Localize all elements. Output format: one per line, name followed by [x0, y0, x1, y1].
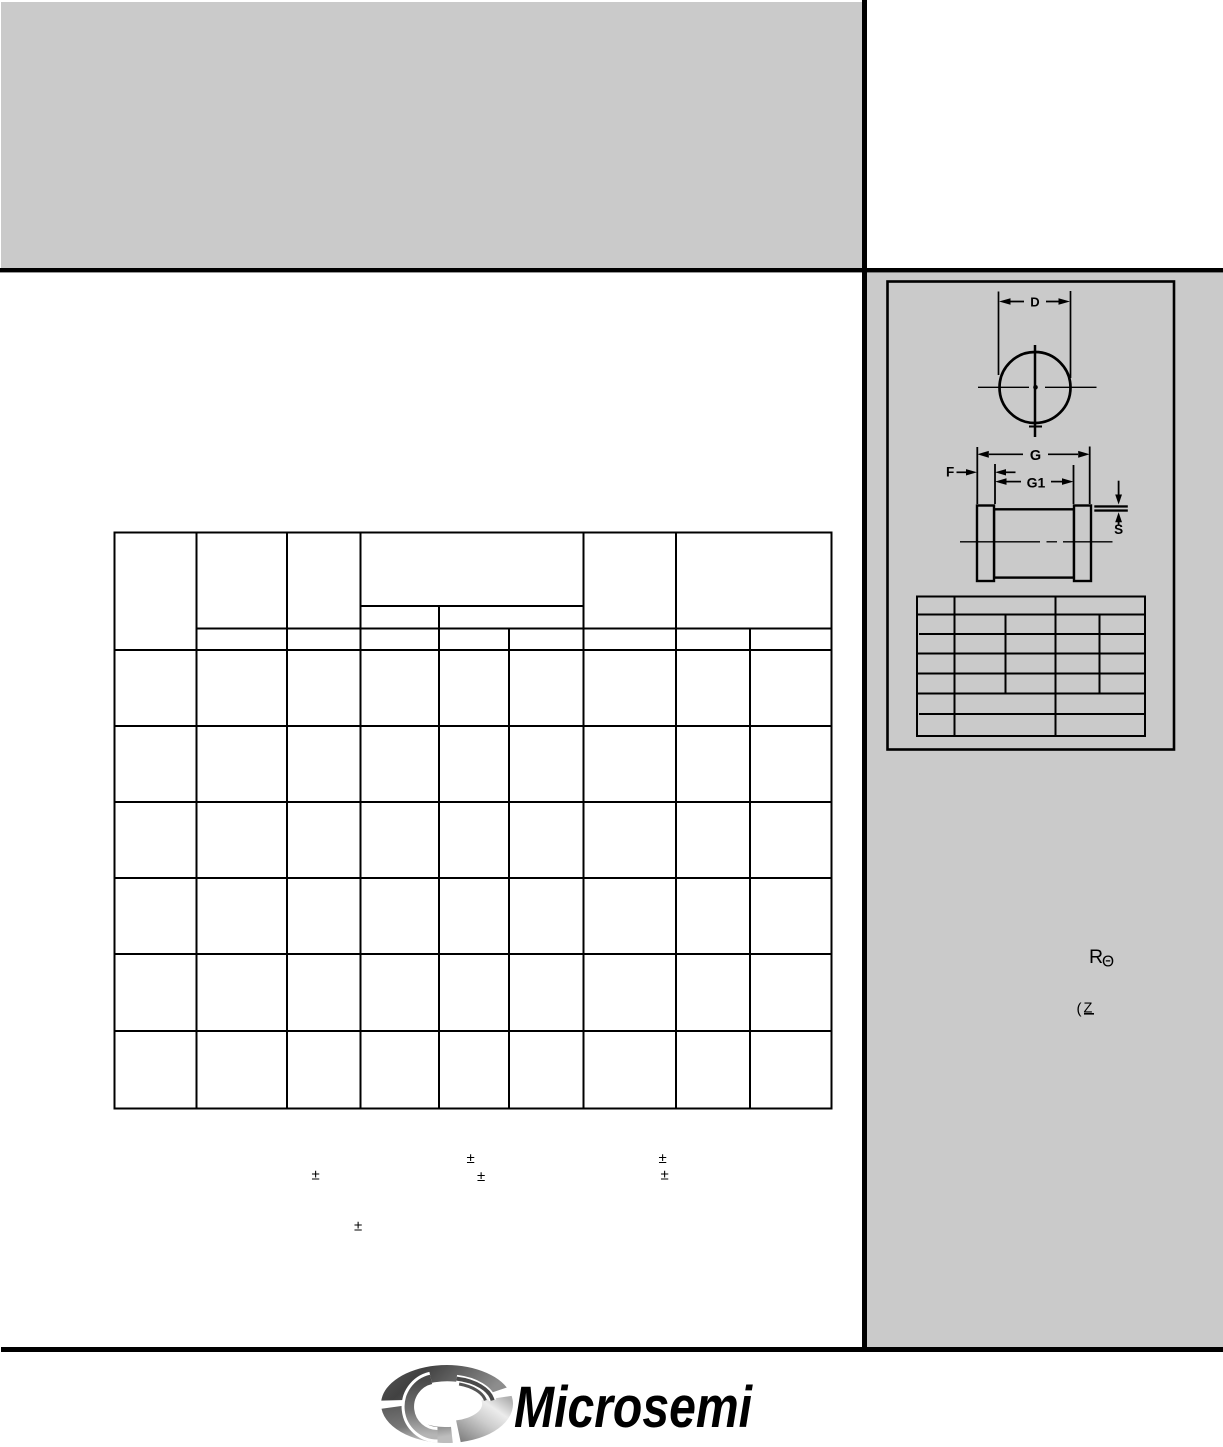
svg-text:G: G: [1030, 448, 1041, 464]
svg-text:±: ±: [354, 1218, 362, 1235]
svg-text:D: D: [1030, 295, 1039, 310]
svg-text:R: R: [1089, 946, 1103, 968]
svg-text:±: ±: [659, 1150, 667, 1167]
svg-text:F: F: [946, 465, 954, 480]
svg-text:Θ: Θ: [1102, 954, 1114, 971]
svg-text:(: (: [1077, 1001, 1082, 1018]
svg-text:±: ±: [467, 1150, 475, 1167]
svg-text:S: S: [1114, 522, 1123, 537]
svg-text:±: ±: [477, 1168, 485, 1185]
svg-text:Microsemi: Microsemi: [514, 1375, 754, 1440]
svg-text:±: ±: [312, 1167, 320, 1184]
svg-text:G1: G1: [1027, 474, 1046, 490]
svg-text:±: ±: [661, 1167, 669, 1184]
